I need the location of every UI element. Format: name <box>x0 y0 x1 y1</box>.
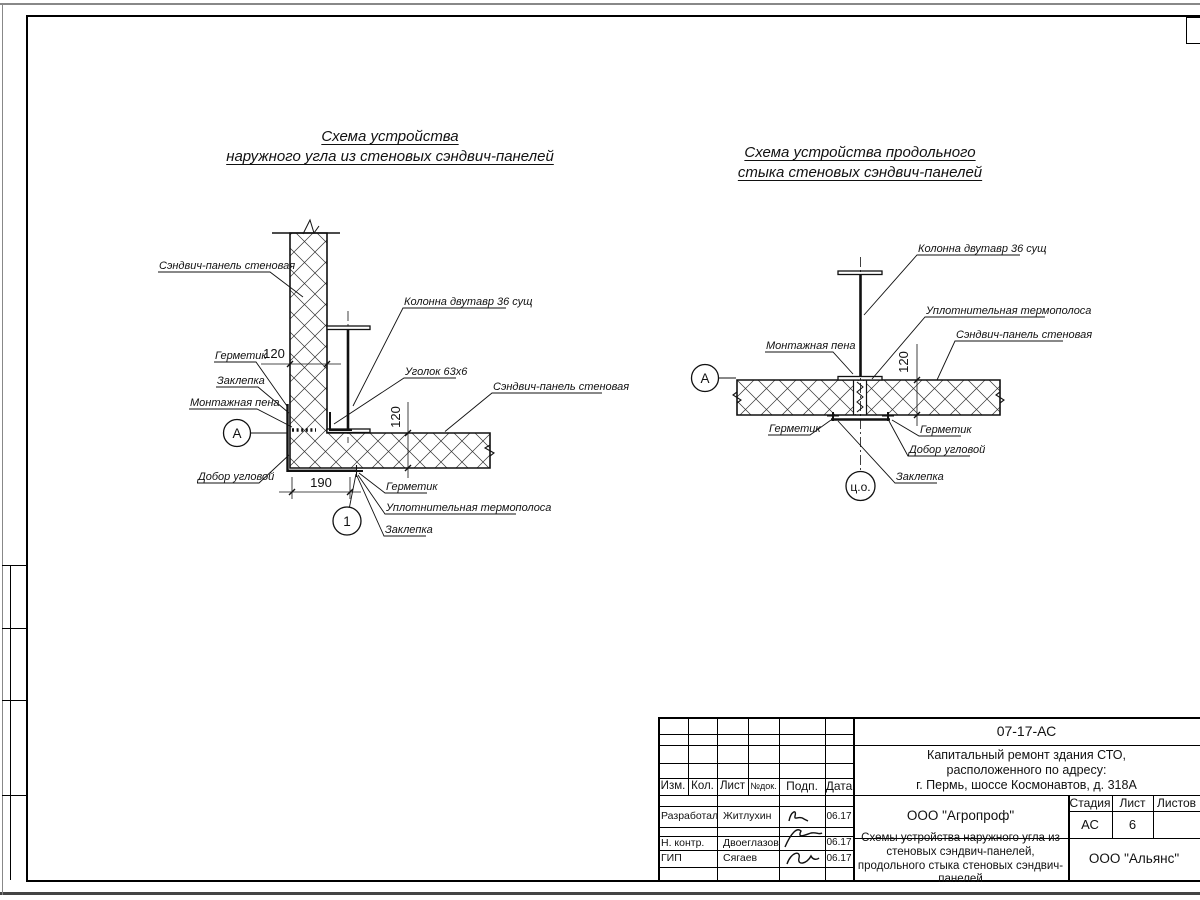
tb-row-name: Сягаев <box>723 850 779 867</box>
label-rivet-top: Заклепка <box>217 375 265 387</box>
tb-stage-value: АС <box>1068 811 1112 838</box>
label-column: Колонна двутавр 36 сущ <box>404 296 533 308</box>
axis-marker-label: А <box>232 426 241 441</box>
label-corner-trim: Добор угловой <box>907 444 985 456</box>
signature-gip <box>779 848 825 870</box>
tb-project: Капитальный ремонт здания СТО, расположе… <box>853 745 1200 795</box>
tb-project-line2: расположенного по адресу: <box>947 763 1107 778</box>
wall-panel-corner <box>290 233 490 468</box>
tb-header-kol: Кол. <box>688 778 717 795</box>
tb-stage-header: Стадия <box>1068 795 1112 811</box>
wall-panel-strip <box>737 380 1000 415</box>
label-thermal-strip: Уплотнительная термополоса <box>385 502 551 514</box>
label-column: Колонна двутавр 36 сущ <box>918 243 1047 255</box>
label-panel-wall-v: Сэндвич-панель стеновая <box>159 260 295 272</box>
tb-doc-title: Схемы устройства наружного угла из стено… <box>855 838 1066 881</box>
dim-panel-120: 120 <box>896 351 911 373</box>
tb-row-role: Разработал <box>661 806 717 827</box>
label-panel-wall-h: Сэндвич-панель стеновая <box>493 381 629 393</box>
node-marker-label: 1 <box>343 514 351 529</box>
tb-sheets-value <box>1153 811 1200 838</box>
tb-sheet-value: 6 <box>1112 811 1153 838</box>
tb-sheet-header: Лист <box>1112 795 1153 811</box>
tb-row-role: ГИП <box>661 850 717 867</box>
tb-header-ndok: №док. <box>748 778 779 795</box>
right-detail: 120 А ц.о. Колонна двутавр 36 сущ Уплотн… <box>692 243 1093 501</box>
axis-marker-label: А <box>700 371 709 386</box>
label-rivet-bottom: Заклепка <box>385 524 433 536</box>
dim-panel-120: 120 <box>388 406 403 428</box>
tb-project-line3: г. Пермь, шоссе Космонавтов, д. 318А <box>916 778 1137 793</box>
label-angle: Уголок 63х6 <box>404 366 468 378</box>
label-foam: Монтажная пена <box>190 397 280 409</box>
tb-header-izm: Изм. <box>658 778 688 795</box>
tb-row-name: Двоеглазов <box>723 836 779 850</box>
column-top-flange <box>327 326 370 330</box>
tb-row-date: 06.17 <box>825 850 853 867</box>
leader-column <box>353 308 506 406</box>
label-panel-wall: Сэндвич-панель стеновая <box>956 329 1092 341</box>
label-rivet: Заклепка <box>896 471 944 483</box>
leader-foam <box>765 352 853 374</box>
tb-row-name: Житлухин <box>723 806 779 827</box>
leader-panel-wall-v <box>158 272 303 297</box>
tb-sheets-header: Листов <box>1153 795 1200 811</box>
title-block: Изм. Кол. Лист №док. Подп. Дата Разработ… <box>658 717 1200 881</box>
column-top-flange <box>838 271 882 275</box>
label-corner-trim: Добор угловой <box>196 471 274 483</box>
label-thermal-strip: Уплотнительная термополоса <box>925 305 1091 317</box>
label-sealant-right: Герметик <box>920 424 972 436</box>
drawing-sheet: Схема устройства наружного угла из стено… <box>0 0 1200 900</box>
column-bottom-flange <box>838 377 882 381</box>
center-marker-label: ц.о. <box>850 480 870 494</box>
tb-header-list: Лист <box>717 778 748 795</box>
label-sealant-left: Герметик <box>769 423 821 435</box>
label-foam: Монтажная пена <box>766 340 856 352</box>
tb-row-role: Н. контр. <box>661 836 717 850</box>
leader-panel-wall <box>937 341 1063 380</box>
tb-row-date: 06.17 <box>825 806 853 827</box>
tb-header-podp: Подп. <box>779 778 825 795</box>
tb-doc-number: 07-17-АС <box>853 717 1200 745</box>
tb-org-customer: ООО "Альянс" <box>1068 838 1200 881</box>
tb-project-line1: Капитальный ремонт здания СТО, <box>927 748 1126 763</box>
dim-190: 190 <box>310 475 332 490</box>
tb-row-date: 06.17 <box>825 836 853 850</box>
left-detail: 120 120 190 А 1 Сэндвич-панель стеновая … <box>158 220 629 536</box>
leader-panel-wall-h <box>445 393 602 432</box>
label-sealant-bottom: Герметик <box>386 481 438 493</box>
label-sealant-top: Герметик <box>215 350 267 362</box>
tb-header-data: Дата <box>825 778 853 795</box>
